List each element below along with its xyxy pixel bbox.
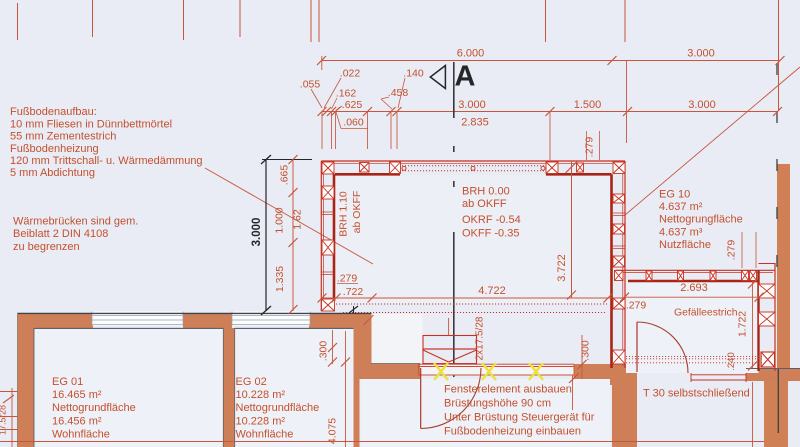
- svg-text:OKRF -0.54: OKRF -0.54: [462, 214, 521, 226]
- svg-text:ab OKFF: ab OKFF: [351, 191, 363, 234]
- svg-text:EG 01: EG 01: [52, 376, 83, 388]
- svg-text:Wärmebrücken sind gem.: Wärmebrücken sind gem.: [13, 215, 138, 227]
- svg-text:A: A: [455, 61, 476, 93]
- svg-text:16.465 m²: 16.465 m²: [52, 389, 102, 401]
- svg-text:ab OKFF: ab OKFF: [462, 198, 507, 210]
- svg-text:3.000: 3.000: [687, 48, 715, 60]
- svg-text:Fußbodenaufbau:: Fußbodenaufbau:: [10, 106, 97, 118]
- svg-text:Nutzfläche: Nutzfläche: [659, 239, 711, 251]
- svg-text:Nettogrundfläche: Nettogrundfläche: [236, 402, 320, 414]
- svg-text:3.000: 3.000: [251, 218, 263, 247]
- svg-text:16.456 m²: 16.456 m²: [52, 415, 102, 427]
- svg-text:Fußbodenheizung: Fußbodenheizung: [10, 143, 99, 155]
- svg-text:10.228 m²: 10.228 m²: [236, 415, 286, 427]
- svg-text:1.335: 1.335: [274, 266, 286, 292]
- svg-text:5 mm Abdichtung: 5 mm Abdichtung: [10, 167, 95, 179]
- svg-text:.458: .458: [388, 87, 409, 99]
- svg-text:.162: .162: [336, 88, 357, 100]
- svg-text:T 30 selbstschließend: T 30 selbstschließend: [643, 387, 750, 399]
- svg-text:BRH 1.10: BRH 1.10: [338, 191, 350, 237]
- svg-text:.300: .300: [580, 340, 592, 361]
- svg-text:Wohnfläche: Wohnfläche: [236, 428, 294, 440]
- svg-text:17.5/28: 17.5/28: [0, 405, 8, 435]
- svg-text:10 mm Fliesen in Dünnbettmörte: 10 mm Fliesen in Dünnbettmörtel: [10, 118, 172, 130]
- svg-text:.060: .060: [343, 117, 364, 129]
- svg-text:Fensterelement ausbauen: Fensterelement ausbauen: [444, 383, 572, 395]
- svg-text:.279: .279: [626, 300, 647, 312]
- svg-text:.279: .279: [726, 240, 738, 261]
- svg-text:BRH 0.00: BRH 0.00: [462, 186, 510, 198]
- svg-text:.625: .625: [342, 99, 363, 111]
- svg-text:4.637 m³: 4.637 m³: [659, 226, 703, 238]
- svg-text:120 mm Trittschall- u. Wärmedä: 120 mm Trittschall- u. Wärmedämmung: [10, 155, 203, 167]
- svg-text:Unter Brüstung Steuergerät für: Unter Brüstung Steuergerät für: [444, 411, 595, 423]
- svg-text:EG 10: EG 10: [659, 189, 690, 201]
- svg-text:Brüstungshöhe 90 cm: Brüstungshöhe 90 cm: [444, 397, 551, 409]
- svg-text:2.835: 2.835: [461, 117, 489, 129]
- svg-text:Nettogrundfläche: Nettogrundfläche: [52, 402, 136, 414]
- svg-text:OKFF -0.35: OKFF -0.35: [462, 228, 519, 240]
- svg-text:.140: .140: [403, 68, 424, 80]
- svg-text:.022: .022: [340, 68, 361, 80]
- svg-text:2x17.5/28: 2x17.5/28: [475, 316, 486, 360]
- svg-text:1.62: 1.62: [292, 209, 304, 230]
- svg-text:.279: .279: [584, 137, 596, 158]
- svg-text:.665: .665: [279, 165, 291, 186]
- svg-text:4.075: 4.075: [327, 418, 339, 444]
- svg-text:4.722: 4.722: [478, 285, 506, 297]
- svg-text:.279: .279: [337, 273, 358, 285]
- svg-text:.055: .055: [300, 79, 321, 91]
- svg-text:1.500: 1.500: [574, 99, 602, 111]
- svg-text:4.637 m²: 4.637 m²: [659, 201, 703, 213]
- svg-text:Gefälleestrich: Gefälleestrich: [674, 308, 738, 319]
- svg-text:zu begrenzen: zu begrenzen: [13, 241, 80, 253]
- svg-text:10.228 m²: 10.228 m²: [236, 389, 286, 401]
- svg-text:2.693: 2.693: [680, 282, 708, 294]
- svg-text:.240: .240: [726, 352, 737, 371]
- svg-text:EG 02: EG 02: [236, 376, 267, 388]
- svg-text:Beiblatt 2 DIN 4108: Beiblatt 2 DIN 4108: [13, 228, 108, 240]
- svg-text:3.000: 3.000: [458, 99, 486, 111]
- svg-text:1.722: 1.722: [737, 311, 749, 337]
- svg-text:.722: .722: [343, 286, 364, 298]
- svg-text:3.722: 3.722: [556, 254, 568, 282]
- svg-text:Wohnfläche: Wohnfläche: [52, 428, 110, 440]
- svg-text:6.000: 6.000: [457, 48, 485, 60]
- svg-text:3.000: 3.000: [688, 99, 716, 111]
- svg-text:1.000: 1.000: [274, 207, 286, 233]
- svg-text:Fußbodenheizung einbauen: Fußbodenheizung einbauen: [444, 425, 581, 437]
- svg-text:.300: .300: [318, 341, 330, 362]
- svg-text:55 mm Zementestrich: 55 mm Zementestrich: [10, 131, 116, 143]
- svg-text:Nettogrungfläche: Nettogrungfläche: [659, 214, 743, 226]
